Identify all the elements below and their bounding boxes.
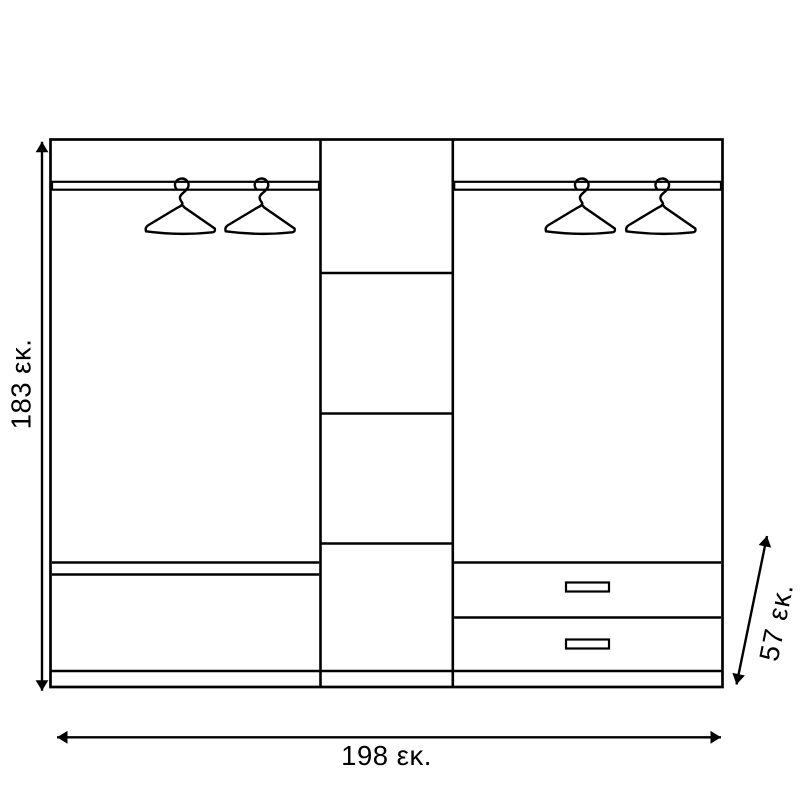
- svg-text:57 εκ.: 57 εκ.: [753, 580, 799, 664]
- svg-text:183 εκ.: 183 εκ.: [6, 339, 37, 430]
- svg-text:198 εκ.: 198 εκ.: [341, 740, 432, 771]
